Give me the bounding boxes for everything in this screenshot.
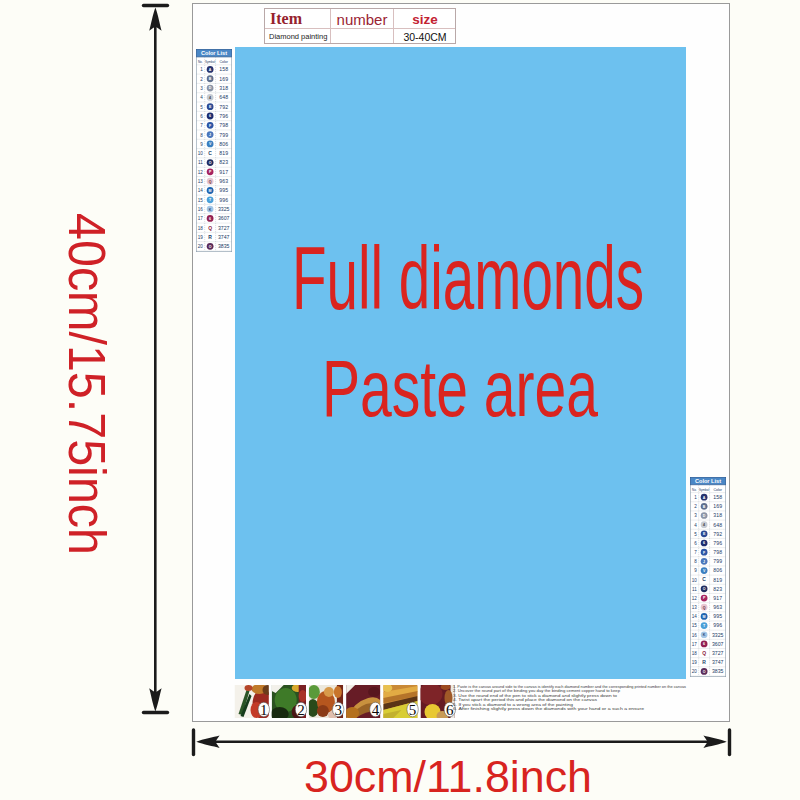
svg-text:O: O (209, 245, 212, 249)
svg-text:995: 995 (219, 187, 228, 193)
svg-text:4: 4 (209, 96, 211, 100)
svg-text:169: 169 (713, 503, 722, 509)
svg-text:13: 13 (198, 179, 204, 184)
svg-text:1: 1 (260, 702, 268, 718)
svg-text:19: 19 (692, 660, 698, 665)
svg-text:14: 14 (198, 188, 204, 193)
svg-text:D: D (209, 86, 212, 90)
svg-text:3747: 3747 (218, 234, 230, 240)
svg-text:158: 158 (219, 66, 228, 72)
svg-text:11: 11 (198, 160, 203, 165)
svg-text:11: 11 (692, 587, 697, 592)
svg-text:996: 996 (713, 622, 722, 628)
svg-text:3607: 3607 (712, 641, 724, 647)
svg-text:9: 9 (200, 142, 203, 147)
svg-text:4: 4 (372, 702, 380, 718)
svg-text:3. Use the round end of the pe: 3. Use the round end of the pen to stick… (453, 694, 617, 698)
svg-text:806: 806 (713, 567, 722, 573)
svg-text:Color List: Color List (201, 50, 227, 56)
svg-text:18: 18 (198, 226, 204, 231)
svg-text:3835: 3835 (218, 243, 230, 249)
svg-text:B: B (703, 505, 706, 509)
svg-text:6. After finishing slightly pr: 6. After finishing slightly press down t… (453, 707, 644, 711)
svg-text:A: A (209, 68, 212, 72)
svg-text:648: 648 (713, 522, 722, 528)
svg-text:M: M (209, 189, 212, 193)
svg-text:10: 10 (692, 578, 698, 583)
svg-text:18: 18 (692, 651, 698, 656)
svg-text:17: 17 (198, 216, 204, 221)
svg-text:963: 963 (219, 178, 228, 184)
svg-text:3747: 3747 (712, 659, 724, 665)
svg-text:995: 995 (713, 613, 722, 619)
svg-text:4: 4 (200, 95, 203, 100)
svg-text:5. If you stick a diamond to a: 5. If you stick a diamond to a wrong are… (453, 703, 573, 707)
svg-text:3727: 3727 (218, 225, 230, 231)
svg-text:Symbol: Symbol (205, 60, 215, 64)
svg-text:2: 2 (200, 77, 203, 82)
svg-text:K: K (209, 208, 212, 212)
svg-text:823: 823 (713, 586, 722, 592)
svg-text:Q: Q (208, 225, 212, 231)
svg-text:3: 3 (200, 86, 203, 91)
svg-text:798: 798 (713, 549, 722, 555)
svg-text:R: R (208, 234, 212, 240)
svg-text:963: 963 (713, 604, 722, 610)
svg-text:3727: 3727 (712, 650, 724, 656)
svg-text:799: 799 (713, 558, 722, 564)
svg-text:Symbol: Symbol (699, 488, 709, 492)
svg-text:2: 2 (297, 702, 305, 718)
svg-text:16: 16 (692, 633, 698, 638)
svg-text:823: 823 (219, 159, 228, 165)
svg-text:1. Paste is the canvas around: 1. Paste is the canvas around side to th… (453, 685, 686, 689)
svg-text:917: 917 (219, 169, 228, 175)
svg-text:3835: 3835 (712, 668, 724, 674)
svg-text:5: 5 (409, 702, 417, 718)
svg-text:6: 6 (703, 642, 705, 646)
svg-text:12: 12 (198, 170, 204, 175)
svg-text:792: 792 (219, 104, 228, 110)
svg-text:Q: Q (703, 606, 706, 610)
svg-text:17: 17 (692, 642, 698, 647)
svg-text:6: 6 (209, 114, 211, 118)
svg-text:3: 3 (334, 702, 342, 718)
svg-text:19: 19 (198, 235, 204, 240)
svg-text:6: 6 (200, 114, 203, 119)
svg-text:14: 14 (692, 614, 698, 619)
svg-text:15: 15 (692, 623, 698, 628)
svg-text:20: 20 (692, 669, 698, 674)
svg-text:8: 8 (200, 133, 203, 138)
svg-text:Q: Q (209, 180, 212, 184)
svg-text:R: R (702, 660, 706, 665)
svg-text:No.: No. (198, 60, 203, 64)
svg-text:Paste area: Paste area (322, 344, 598, 433)
svg-text:6: 6 (209, 217, 211, 221)
svg-text:3325: 3325 (218, 206, 230, 212)
svg-text:20: 20 (198, 244, 204, 249)
svg-text:798: 798 (219, 122, 228, 128)
svg-text:No.: No. (692, 488, 697, 492)
svg-text:15: 15 (198, 198, 204, 203)
svg-text:3325: 3325 (712, 632, 724, 638)
svg-text:4. Twist apart the period this: 4. Twist apart the period this and place… (453, 698, 597, 702)
svg-text:2. Uncover the round part of t: 2. Uncover the round part of the binding… (453, 689, 620, 693)
svg-text:A: A (703, 496, 706, 500)
svg-text:819: 819 (219, 150, 228, 156)
svg-text:917: 917 (713, 595, 722, 601)
svg-text:648: 648 (219, 94, 228, 100)
svg-text:O: O (703, 587, 706, 591)
svg-text:4: 4 (703, 523, 705, 527)
svg-text:7: 7 (200, 123, 203, 128)
svg-text:40cm/15.75inch: 40cm/15.75inch (58, 213, 115, 555)
svg-text:C: C (208, 150, 212, 156)
svg-text:5: 5 (200, 105, 203, 110)
svg-text:792: 792 (713, 531, 722, 537)
svg-text:K: K (703, 633, 706, 637)
svg-text:996: 996 (219, 197, 228, 203)
svg-text:Color List: Color List (695, 478, 721, 484)
svg-text:Full diamonds: Full diamonds (292, 228, 644, 328)
svg-text:O: O (703, 670, 706, 674)
svg-text:D: D (703, 514, 706, 518)
svg-text:Color: Color (713, 488, 722, 492)
svg-text:30cm/11.8inch: 30cm/11.8inch (304, 751, 592, 800)
svg-text:1: 1 (200, 67, 203, 72)
svg-text:796: 796 (219, 113, 228, 119)
svg-text:J: J (703, 560, 705, 564)
svg-text:806: 806 (219, 141, 228, 147)
svg-text:16: 16 (198, 207, 204, 212)
svg-text:318: 318 (713, 512, 722, 518)
svg-text:B: B (209, 77, 212, 81)
svg-text:C: C (702, 578, 706, 583)
svg-text:318: 318 (219, 85, 228, 91)
svg-text:799: 799 (219, 132, 228, 138)
svg-text:796: 796 (713, 540, 722, 546)
svg-text:O: O (209, 161, 212, 165)
svg-text:169: 169 (219, 76, 228, 82)
svg-text:13: 13 (692, 605, 698, 610)
svg-text:12: 12 (692, 596, 698, 601)
svg-text:M: M (703, 615, 706, 619)
svg-text:819: 819 (713, 577, 722, 583)
svg-text:10: 10 (198, 151, 204, 156)
svg-text:3607: 3607 (218, 215, 230, 221)
svg-text:Color: Color (219, 60, 228, 64)
svg-text:6: 6 (703, 541, 705, 545)
svg-text:J: J (209, 133, 211, 137)
svg-text:Q: Q (702, 651, 706, 656)
svg-text:158: 158 (713, 494, 722, 500)
